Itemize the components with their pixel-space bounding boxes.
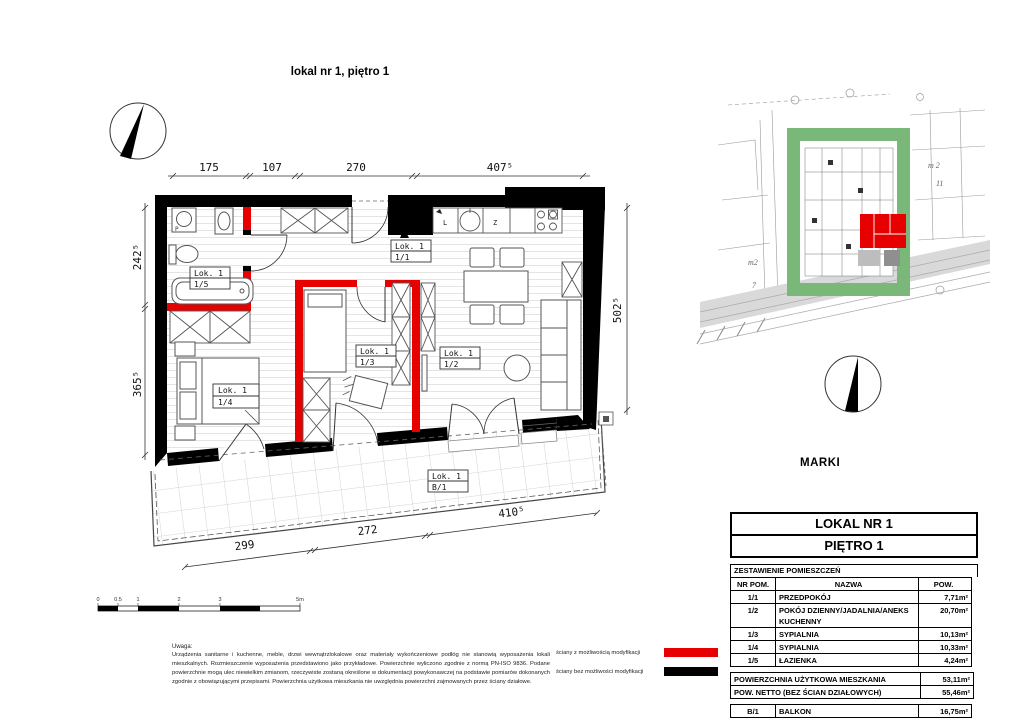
table-total-row: POW. NETTO (BEZ ŚCIAN DZIAŁOWYCH) 55,46m…	[730, 685, 978, 699]
col-header-name: NAZWA	[775, 577, 919, 591]
svg-text:1: 1	[136, 597, 139, 603]
legend-item-modifiable: ściany z możliwością modyfikacji	[556, 648, 718, 657]
svg-text:Lok. 1: Lok. 1	[360, 347, 389, 356]
svg-text:0: 0	[96, 597, 99, 603]
dim-left-2: 365⁵	[131, 371, 144, 398]
scale-bar: 0 0.5 1 2 3 5m	[96, 597, 304, 611]
notes-block: Uwaga: Urządzenia sanitarne i kuchenne, …	[172, 644, 550, 687]
svg-text:Lok. 1: Lok. 1	[218, 386, 247, 395]
table-title-lokal: LOKAL NR 1	[730, 512, 978, 536]
dim-top-1: 175	[199, 161, 219, 174]
dim-bottom-1: 299	[234, 538, 255, 553]
toilet	[169, 245, 198, 264]
washbasin	[215, 208, 233, 234]
svg-text:0.5: 0.5	[114, 597, 122, 603]
svg-text:Lok. 1: Lok. 1	[395, 242, 424, 251]
summary-table: LOKAL NR 1 PIĘTRO 1 ZESTAWIENIE POMIESZC…	[730, 512, 978, 718]
room-label-b-1: Lok. 1 B/1	[428, 470, 468, 492]
svg-text:m 2: m 2	[928, 161, 940, 170]
table-total-row: POWIERZCHNIA UŻYTKOWA MIESZKANIA 53,11m²	[730, 672, 978, 686]
svg-text:Lok. 1: Lok. 1	[194, 269, 223, 278]
table-header-row: NR POM. NAZWA POW.	[730, 577, 978, 591]
dining-table	[464, 271, 528, 302]
svg-text:1/4: 1/4	[218, 398, 233, 407]
city-label: MARKI	[800, 457, 840, 469]
floor-plan: P	[131, 161, 630, 570]
washer-label: P	[175, 226, 179, 233]
sink-label: Z	[493, 219, 497, 227]
table-row: 1/3 SYPIALNIA 10,13m²	[730, 627, 978, 641]
room-label-1-4: Lok. 1 1/4	[213, 384, 259, 408]
legend-swatch-red	[664, 648, 718, 657]
north-arrow-icon	[110, 103, 166, 159]
site-plan: m2 7 m 2 11	[697, 89, 990, 344]
radiator	[422, 355, 427, 391]
kitchen-sink	[460, 211, 480, 231]
table-row: 1/1 PRZEDPOKÓJ 7,71m²	[730, 590, 978, 604]
svg-text:2: 2	[177, 597, 180, 603]
svg-text:1/1: 1/1	[395, 253, 410, 262]
dim-bottom-2: 272	[357, 523, 378, 538]
table-row: 1/5 ŁAZIENKA 4,24m²	[730, 653, 978, 667]
room-label-1-5: Lok. 1 1/5	[190, 267, 230, 289]
svg-text:1/5: 1/5	[194, 280, 209, 289]
drain-marker	[599, 412, 613, 425]
bed-1-3	[304, 290, 346, 372]
dim-top-2: 107	[262, 161, 282, 174]
site-balcony-2	[884, 250, 900, 266]
svg-text:m2: m2	[748, 258, 758, 267]
table-section-title: ZESTAWIENIE POMIESZCZEŃ	[730, 564, 978, 578]
dim-right-1: 502⁵	[611, 297, 624, 324]
legend-label: ściany z możliwością modyfikacji	[556, 650, 664, 656]
dim-top-4: 407⁵	[487, 161, 514, 174]
north-arrow-2-icon	[825, 356, 881, 412]
site-balcony-1	[858, 250, 880, 266]
room-label-1-2: Lok. 1 1/2	[440, 347, 480, 369]
notes-heading: Uwaga:	[172, 644, 550, 650]
col-header-nr: NR POM.	[730, 577, 776, 591]
table-title-pietro: PIĘTRO 1	[730, 534, 978, 558]
table-row: 1/4 SYPIALNIA 10,33m²	[730, 640, 978, 654]
svg-text:11: 11	[936, 179, 943, 188]
legend-item-fixed: ściany bez możliwości modyfikacji	[556, 667, 718, 676]
col-header-area: POW.	[918, 577, 972, 591]
table-balcony-row: B/1 BALKON 16,75m²	[730, 704, 978, 718]
kitchen-counter: L Z	[433, 208, 562, 233]
svg-text:7: 7	[752, 281, 757, 290]
legend-swatch-black	[664, 667, 718, 676]
legend-label: ściany bez możliwości modyfikacji	[556, 669, 664, 675]
dim-bottom-3: 410⁵	[498, 504, 526, 520]
dim-top-3: 270	[346, 161, 366, 174]
svg-text:5m: 5m	[296, 597, 304, 603]
dim-left-1: 242⁵	[131, 244, 144, 271]
floorplan-page: lokal nr 1, piętro 1	[0, 0, 1024, 724]
svg-text:1/3: 1/3	[360, 358, 375, 367]
svg-text:Lok. 1: Lok. 1	[444, 349, 473, 358]
svg-text:3: 3	[218, 597, 221, 603]
walls-legend: ściany z możliwością modyfikacji ściany …	[556, 648, 718, 686]
notes-body: Urządzenia sanitarne i kuchenne, meble, …	[172, 651, 550, 687]
room-label-1-3: Lok. 1 1/3	[356, 345, 396, 367]
svg-text:B/1: B/1	[432, 483, 447, 492]
svg-text:1/2: 1/2	[444, 360, 459, 369]
pouf	[504, 355, 530, 381]
fridge-label: L	[443, 219, 447, 227]
svg-text:Lok. 1: Lok. 1	[432, 472, 461, 481]
washing-machine: P	[172, 208, 196, 233]
table-row: 1/2 POKÓJ DZIENNY/JADALNIA/ANEKS KUCHENN…	[730, 603, 978, 628]
site-highlight-unit	[860, 214, 906, 248]
sofa	[541, 300, 581, 410]
